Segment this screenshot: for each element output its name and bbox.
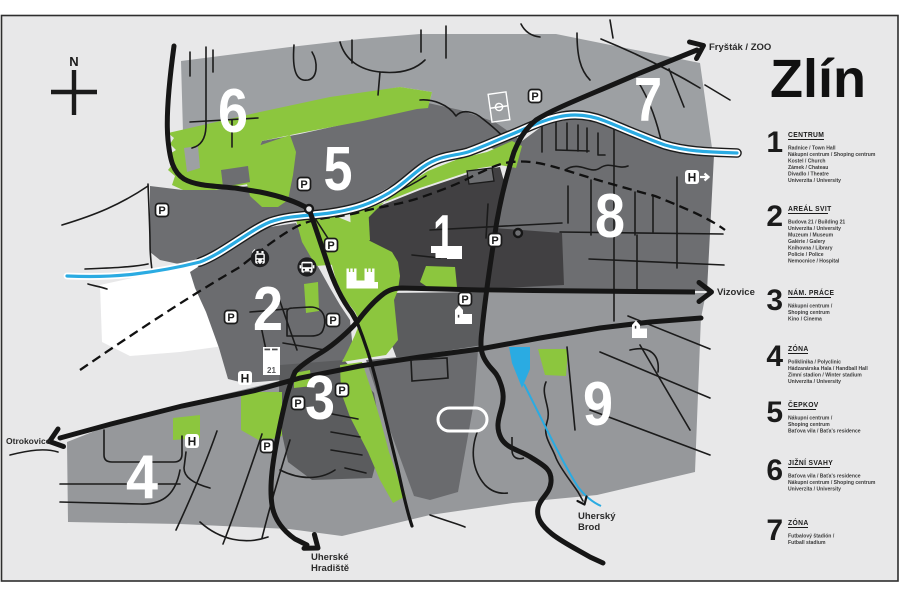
svg-text:1: 1 [766,126,783,159]
svg-text:ZÓNA: ZÓNA [788,518,809,527]
svg-text:Radnice / Town Hall: Radnice / Town Hall [788,145,836,151]
svg-text:Uherský: Uherský [578,511,616,522]
svg-text:2: 2 [766,200,783,233]
svg-text:Budova 21 / Building 21: Budova 21 / Building 21 [788,219,845,225]
svg-text:Policie / Police: Policie / Police [788,252,824,258]
svg-text:9: 9 [583,370,613,439]
svg-text:AREÁL SVIT: AREÁL SVIT [788,204,832,213]
svg-text:Univerzita / University: Univerzita / University [788,226,842,232]
svg-text:Nákupní centrum / Shoping cent: Nákupní centrum / Shoping centrum [788,480,875,486]
svg-text:Zámek / Chateau: Zámek / Chateau [788,165,828,171]
svg-text:Muzeum / Museum: Muzeum / Museum [788,232,833,238]
svg-text:Kino / Cinema: Kino / Cinema [788,316,823,322]
svg-text:4: 4 [766,340,783,373]
svg-text:Nákupní centrum /: Nákupní centrum / [788,415,833,421]
svg-text:Knihovna / Library: Knihovna / Library [788,245,833,251]
svg-text:1: 1 [433,203,455,272]
svg-text:6: 6 [218,77,248,146]
svg-text:Univerzita / University: Univerzita / University [788,178,842,184]
svg-text:Univerzita / University: Univerzita / University [788,379,842,385]
svg-text:CENTRUM: CENTRUM [788,131,824,139]
svg-text:Baťova vila / Baťa's residence: Baťova vila / Baťa's residence [788,428,861,434]
svg-text:Zlín: Zlín [770,49,866,109]
svg-text:Nákupní centrum / Shoping cent: Nákupní centrum / Shoping centrum [788,152,875,158]
svg-text:Hradiště: Hradiště [311,563,349,574]
svg-text:Brod: Brod [578,522,600,533]
svg-text:Poliklinika / Polyclinic: Poliklinika / Polyclinic [788,359,841,365]
svg-text:JIŽNÍ SVAHY: JIŽNÍ SVAHY [788,458,833,467]
svg-text:Nákupní centrum /: Nákupní centrum / [788,303,833,309]
svg-text:Futball stadium: Futball stadium [788,540,826,546]
svg-text:21: 21 [267,366,276,375]
svg-text:Uherské: Uherské [311,552,349,563]
svg-text:Vizovice: Vizovice [717,287,755,298]
svg-text:Nemocnice / Hospital: Nemocnice / Hospital [788,258,840,264]
svg-text:2: 2 [253,275,283,344]
svg-text:8: 8 [595,182,625,251]
svg-text:3: 3 [305,364,335,433]
svg-text:4: 4 [126,443,158,512]
svg-text:7: 7 [634,66,662,135]
svg-text:Hádzanárska Hala / Handball Ha: Hádzanárska Hala / Handball Hall [788,366,868,372]
svg-text:Kostel / Church: Kostel / Church [788,158,826,164]
svg-text:Zimní stadion / Winter stadium: Zimní stadion / Winter stadium [788,372,862,378]
svg-text:Futbalový štadión /: Futbalový štadión / [788,533,835,539]
svg-text:Fryšták / ZOO: Fryšták / ZOO [709,42,771,53]
svg-text:ZÓNA: ZÓNA [788,344,809,353]
svg-text:7: 7 [766,514,783,547]
svg-text:Galérie / Galery: Galérie / Galery [788,239,826,245]
svg-text:ČEPKOV: ČEPKOV [788,400,819,409]
svg-text:Baťova vila / Baťa's residence: Baťova vila / Baťa's residence [788,473,861,479]
svg-text:5: 5 [324,135,353,204]
svg-text:3: 3 [766,284,783,317]
svg-text:Divadlo / Theatre: Divadlo / Theatre [788,171,829,177]
svg-text:NÁM. PRÁCE: NÁM. PRÁCE [788,288,834,297]
svg-text:Otrokovice: Otrokovice [6,436,51,446]
svg-text:6: 6 [766,454,783,487]
svg-text:Univerzita / University: Univerzita / University [788,486,842,492]
svg-text:Shoping centrum: Shoping centrum [788,310,830,316]
svg-text:N: N [69,54,78,69]
svg-text:Shoping centrum: Shoping centrum [788,422,830,428]
svg-text:5: 5 [766,396,783,429]
